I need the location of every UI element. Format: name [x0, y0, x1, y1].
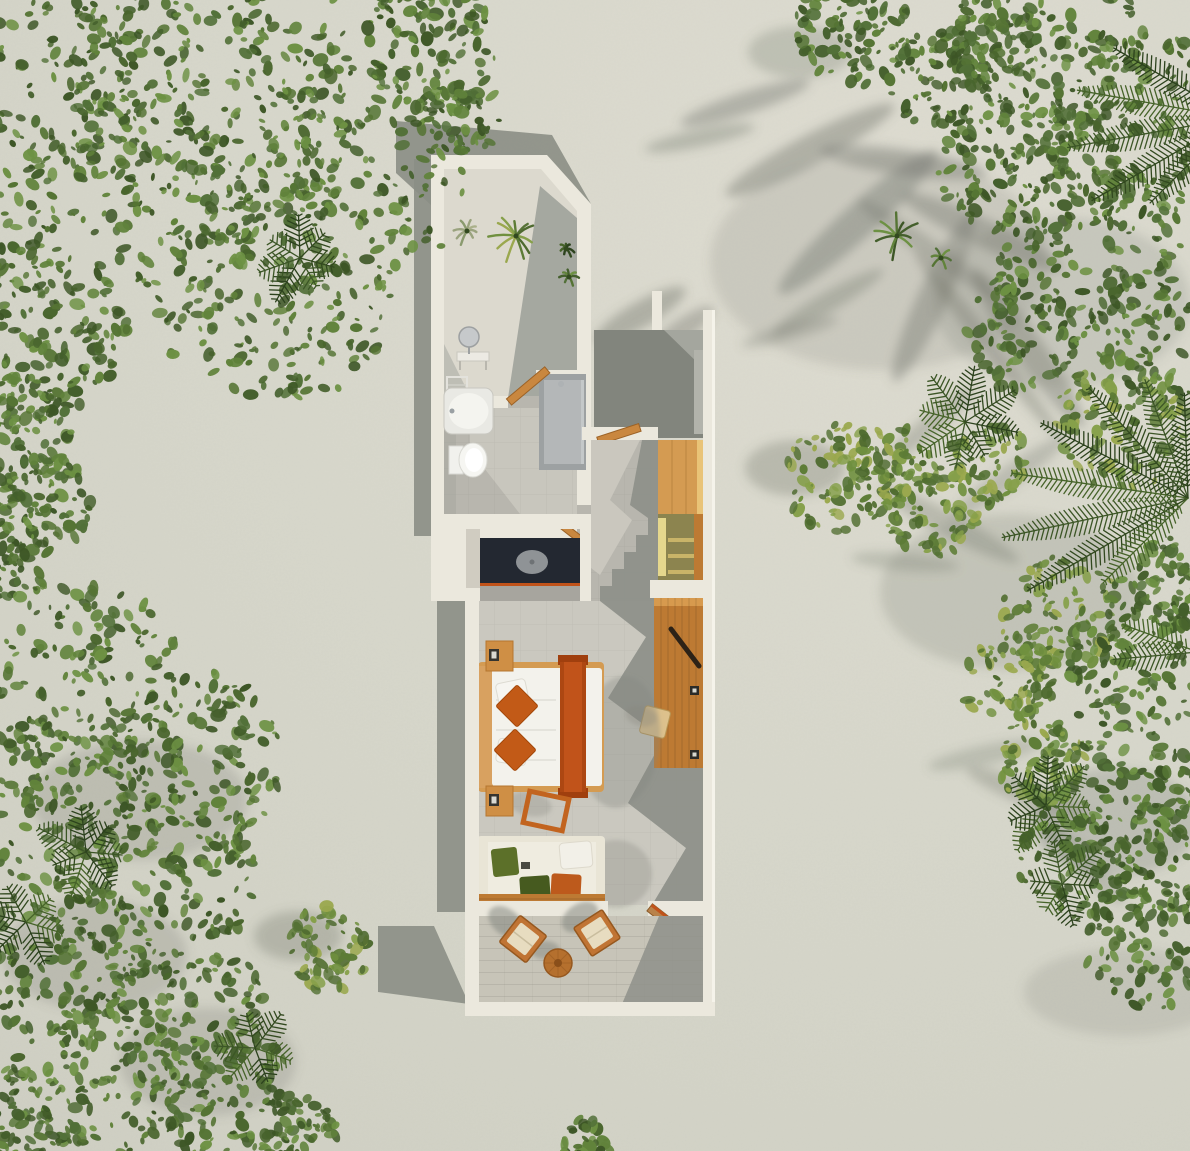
bed-headboard — [478, 666, 494, 788]
bed — [478, 655, 604, 798]
cabinet-separator-wall — [650, 580, 703, 598]
shower-glass — [581, 380, 584, 464]
wardrobe — [654, 598, 704, 768]
round-coffee-table — [544, 949, 572, 977]
scene — [0, 0, 1190, 1151]
sofa-tray-item — [521, 862, 530, 869]
sofa-pillow-white — [559, 841, 593, 870]
deck-bottom-wall — [465, 1002, 715, 1016]
nightstand-bottom — [486, 786, 513, 816]
nightstand-top — [486, 641, 513, 671]
east-wall-highlight — [712, 310, 715, 1016]
bathtub — [444, 388, 493, 434]
washbasin-counter — [480, 538, 580, 589]
west-wall — [465, 590, 479, 1016]
entry-lit-sliver — [694, 350, 703, 434]
shower-head — [558, 381, 564, 387]
daybed-sofa — [477, 836, 605, 912]
storage-cabinet — [658, 440, 703, 514]
round-mirror — [459, 327, 479, 347]
sofa-cushion-green — [491, 847, 520, 878]
vanity-table-top — [457, 352, 489, 361]
entry-wall-stub — [652, 291, 662, 330]
bathroom-courtyard-block — [431, 155, 591, 601]
desk-nook — [658, 514, 703, 580]
floor-plan-render — [0, 0, 1190, 1151]
nook-under-shade — [480, 586, 580, 601]
shower — [539, 374, 586, 470]
nook-top-wall — [444, 514, 591, 529]
nook-right-wall — [580, 529, 591, 601]
tub-faucet — [450, 409, 455, 414]
toilet — [449, 443, 487, 477]
